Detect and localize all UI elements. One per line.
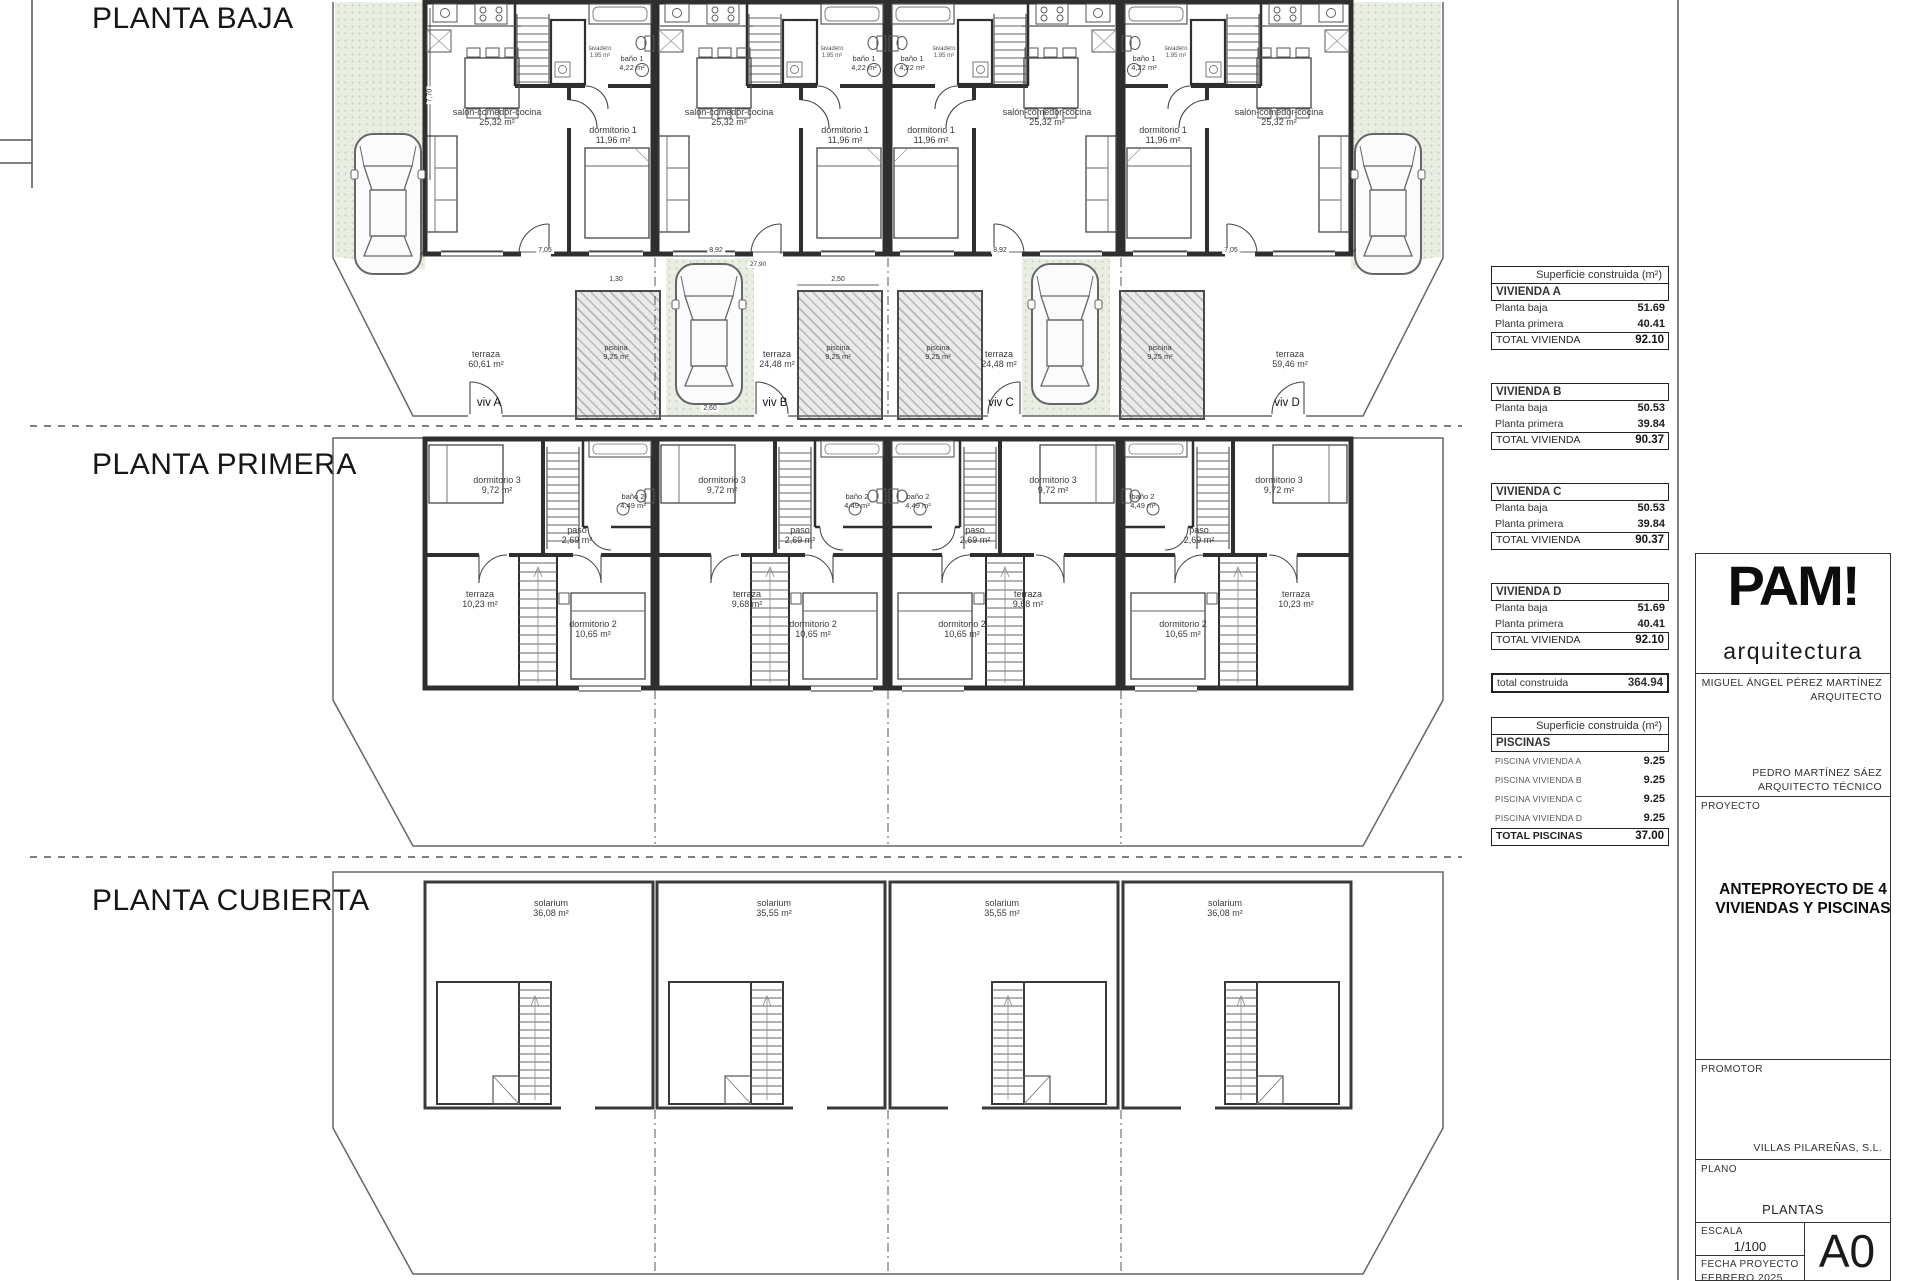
terraza1-label-b: terraza9,68 m² bbox=[732, 589, 763, 610]
driveway-b bbox=[666, 258, 754, 416]
terraza-label-b: terraza24,48 m² bbox=[759, 349, 795, 370]
plan-sheet: { "plans": { "baja": { "title": "PLANTA … bbox=[0, 0, 1920, 1280]
room-label-dorm1-a: dormitorio 111,96 m² bbox=[589, 125, 637, 146]
room-label-bano2-a: baño 24,49 m² bbox=[620, 493, 645, 510]
section-separators bbox=[30, 426, 1462, 857]
room-label-dorm2-b: dormitorio 210,65 m² bbox=[789, 619, 837, 640]
piscina-label-b: piscina9,25 m² bbox=[825, 344, 850, 361]
room-label-dorm2-c: dormitorio 210,65 m² bbox=[938, 619, 986, 640]
table-row: Planta baja51.69 bbox=[1491, 301, 1669, 317]
room-label-dorm3-d: dormitorio 39,72 m² bbox=[1255, 475, 1303, 496]
table-row: PISCINA VIVIENDA C9.25 bbox=[1491, 790, 1669, 809]
vivienda-c-block: VIVIENDA C Planta baja50.53 Planta prime… bbox=[1491, 483, 1669, 550]
garden-strip-right bbox=[1351, 2, 1441, 270]
total-construida: total construida364.94 bbox=[1491, 673, 1669, 693]
vivienda-c-title: VIVIENDA C bbox=[1491, 483, 1669, 501]
solarium-label-a: solarium36,08 m² bbox=[533, 898, 569, 919]
terraza-label-c: terraza24,48 m² bbox=[981, 349, 1017, 370]
room-label-dorm3-a: dormitorio 39,72 m² bbox=[473, 475, 521, 496]
piscinas-title: PISCINAS bbox=[1491, 735, 1669, 752]
room-label-bano1-b: baño 14,22 m² bbox=[851, 55, 876, 72]
room-label-bano2-d: baño 24,49 m² bbox=[1130, 493, 1155, 510]
vivienda-b-total: TOTAL VIVIENDA90.37 bbox=[1491, 432, 1669, 450]
dim-892-c: 8,92 bbox=[991, 247, 1009, 254]
room-label-bano1-d: baño 14,22 m² bbox=[1131, 55, 1156, 72]
room-label-dorm3-c: dormitorio 39,72 m² bbox=[1029, 475, 1077, 496]
table-row: Planta primera40.41 bbox=[1491, 317, 1669, 333]
dim-770: 7,70 bbox=[427, 87, 434, 105]
planta-cubierta-title: PLANTA CUBIERTA bbox=[92, 884, 370, 918]
tech-architect-name: PEDRO MARTÍNEZ SÁEZ bbox=[1752, 767, 1882, 779]
room-label-bano2-b: baño 24,49 m² bbox=[844, 493, 869, 510]
vivienda-a-total: TOTAL VIVIENDA92.10 bbox=[1491, 332, 1669, 350]
room-label-lavadero-b: lavadero1,95 m² bbox=[820, 46, 843, 60]
piscina-label-d: piscina9,25 m² bbox=[1147, 344, 1172, 361]
viv-b-label: viv B bbox=[763, 397, 788, 409]
dim-705-a: 7,05 bbox=[536, 247, 554, 254]
table-row: PISCINA VIVIENDA D9.25 bbox=[1491, 809, 1669, 828]
fecha-label: FECHA PROYECTO bbox=[1701, 1259, 1799, 1270]
room-label-paso-c: paso2,69 m² bbox=[960, 525, 991, 546]
table-row: Planta primera39.84 bbox=[1491, 417, 1669, 433]
tech-architect-role: ARQUITECTO TÉCNICO bbox=[1758, 781, 1882, 793]
table-row: PISCINA VIVIENDA B9.25 bbox=[1491, 771, 1669, 790]
vivienda-c-total: TOTAL VIVIENDA90.37 bbox=[1491, 532, 1669, 550]
garden-strip-left bbox=[335, 2, 425, 270]
room-label-bano2-c: baño 24,49 m² bbox=[905, 493, 930, 510]
dim-250: 2,50 bbox=[829, 276, 847, 283]
escala-label: ESCALA bbox=[1701, 1226, 1743, 1237]
piscinas-table: Superficie construida (m²) PISCINAS PISC… bbox=[1491, 717, 1669, 846]
plano-name: PLANTAS bbox=[1696, 1202, 1890, 1217]
room-label-paso-b: paso2,69 m² bbox=[785, 525, 816, 546]
plano-label: PLANO bbox=[1701, 1164, 1737, 1175]
escala-value: 1/100 bbox=[1696, 1239, 1804, 1254]
vivienda-a-block: VIVIENDA A Planta baja51.69 Planta prime… bbox=[1491, 284, 1669, 350]
piscina-label-c: piscina9,25 m² bbox=[925, 344, 950, 361]
room-label-bano1-c: baño 14,22 m² bbox=[899, 55, 924, 72]
table-row: Planta primera40.41 bbox=[1491, 617, 1669, 633]
dim-892-b: 8,92 bbox=[707, 247, 725, 254]
title-block: PAM! arquitectura MIGUEL ÁNGEL PÉREZ MAR… bbox=[1695, 553, 1891, 1281]
solarium-label-d: solarium36,08 m² bbox=[1207, 898, 1243, 919]
pam-logo: PAM! bbox=[1696, 558, 1890, 614]
room-label-lavadero-c: lavadero1,95 m² bbox=[932, 46, 955, 60]
table-row: Planta baja50.53 bbox=[1491, 501, 1669, 517]
room-label-dorm1-b: dormitorio 111,96 m² bbox=[821, 125, 869, 146]
vivienda-a-title: VIVIENDA A bbox=[1491, 284, 1669, 301]
sheet-size: A0 bbox=[1804, 1224, 1890, 1278]
promotor-name: VILLAS PILAREÑAS, S.L. bbox=[1753, 1142, 1882, 1154]
piscina-label-a: piscina9,25 m² bbox=[603, 344, 628, 361]
room-label-salon-b: salón-comedor-cocina25,32 m² bbox=[685, 107, 774, 128]
room-label-dorm1-c: dormitorio 111,96 m² bbox=[907, 125, 955, 146]
piscinas-header: Superficie construida (m²) bbox=[1491, 717, 1669, 735]
room-label-lavadero-d: lavadero1,95 m² bbox=[1164, 46, 1187, 60]
pam-logo-subtitle: arquitectura bbox=[1696, 638, 1890, 665]
dim-2790: 27,90 bbox=[748, 261, 768, 268]
vivienda-b-title: VIVIENDA B bbox=[1491, 383, 1669, 401]
solarium-label-c: solarium35,55 m² bbox=[984, 898, 1020, 919]
piscinas-total: TOTAL PISCINAS37.00 bbox=[1491, 828, 1669, 846]
terraza-label-a: terraza60,61 m² bbox=[468, 349, 504, 370]
architect-role: ARQUITECTO bbox=[1810, 691, 1882, 703]
table-row: Planta baja51.69 bbox=[1491, 601, 1669, 617]
room-label-paso-d: paso2,69 m² bbox=[1184, 525, 1215, 546]
room-label-dorm2-a: dormitorio 210,65 m² bbox=[569, 619, 617, 640]
dim-130: 1,30 bbox=[607, 276, 625, 283]
planta-cubierta-drawing bbox=[333, 872, 1443, 1274]
planta-primera-title: PLANTA PRIMERA bbox=[92, 448, 357, 482]
viv-c-label: viv C bbox=[988, 397, 1014, 409]
terraza1-label-c: terraza9,68 m² bbox=[1013, 589, 1044, 610]
room-label-bano1-a: baño 14,22 m² bbox=[619, 55, 644, 72]
room-label-dorm1-d: dormitorio 111,96 m² bbox=[1139, 125, 1187, 146]
dim-260: 2,60 bbox=[701, 405, 719, 412]
terraza-label-d: terraza59,46 m² bbox=[1272, 349, 1308, 370]
proyecto-label: PROYECTO bbox=[1701, 801, 1760, 812]
room-label-salon-d: salón-comedor-cocina25,32 m² bbox=[1235, 107, 1324, 128]
surface-tables: Superficie construida (m²) VIVIENDA A Pl… bbox=[1491, 266, 1669, 846]
dim-705-d: 7,05 bbox=[1222, 247, 1240, 254]
terraza1-label-d: terraza10,23 m² bbox=[1278, 589, 1314, 610]
table-row: PISCINA VIVIENDA A9.25 bbox=[1491, 752, 1669, 771]
room-label-dorm2-d: dormitorio 210,65 m² bbox=[1159, 619, 1207, 640]
vivienda-d-total: TOTAL VIVIENDA92.10 bbox=[1491, 632, 1669, 650]
room-label-salon-a: salón-comedor-cocina25,32 m² bbox=[453, 107, 542, 128]
planta-primera-drawing bbox=[333, 438, 1443, 846]
room-label-paso-a: paso2,69 m² bbox=[562, 525, 593, 546]
table-row: Planta primera39.84 bbox=[1491, 517, 1669, 533]
vivienda-d-title: VIVIENDA D bbox=[1491, 583, 1669, 601]
promotor-label: PROMOTOR bbox=[1701, 1064, 1763, 1075]
room-label-salon-c: salón-comedor-cocina25,32 m² bbox=[1003, 107, 1092, 128]
driveway-c bbox=[1022, 258, 1110, 416]
room-label-dorm3-b: dormitorio 39,72 m² bbox=[698, 475, 746, 496]
vivienda-b-block: VIVIENDA B Planta baja50.53 Planta prime… bbox=[1491, 383, 1669, 450]
table-row: Planta baja50.53 bbox=[1491, 401, 1669, 417]
room-label-lavadero-a: lavadero1,95 m² bbox=[588, 46, 611, 60]
viv-d-label: viv D bbox=[1274, 397, 1300, 409]
planta-baja-title: PLANTA BAJA bbox=[92, 2, 294, 36]
viv-a-label: viv A bbox=[477, 397, 501, 409]
terraza1-label-a: terraza10,23 m² bbox=[462, 589, 498, 610]
solarium-label-b: solarium35,55 m² bbox=[756, 898, 792, 919]
construida-header: Superficie construida (m²) bbox=[1491, 266, 1669, 284]
proyecto-title: ANTEPROYECTO DE 4 VIVIENDAS Y PISCINAS bbox=[1696, 880, 1891, 919]
architect-name: MIGUEL ÁNGEL PÉREZ MARTÍNEZ bbox=[1702, 677, 1882, 689]
vivienda-d-block: VIVIENDA D Planta baja51.69 Planta prime… bbox=[1491, 583, 1669, 650]
